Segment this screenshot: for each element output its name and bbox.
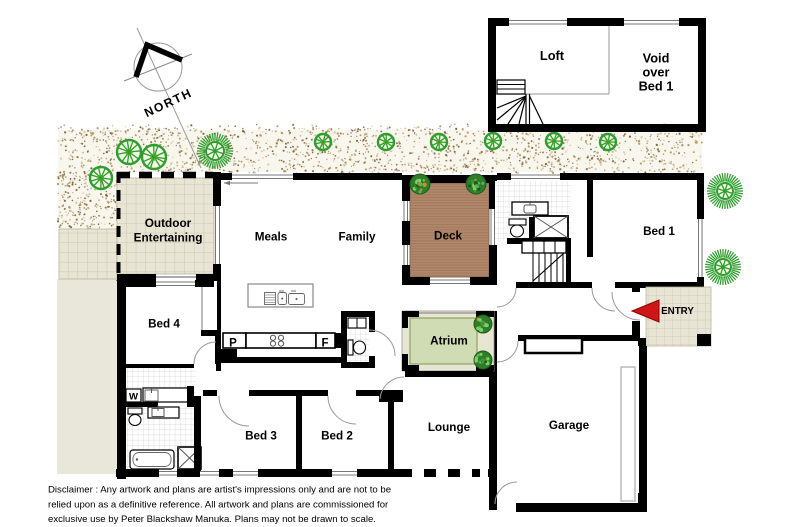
svg-text:Bed 3: Bed 3 bbox=[245, 430, 277, 443]
svg-text:W: W bbox=[129, 392, 138, 403]
svg-text:Family: Family bbox=[338, 231, 376, 244]
svg-text:Lounge: Lounge bbox=[428, 421, 471, 434]
svg-text:ENTRY: ENTRY bbox=[661, 306, 694, 317]
svg-text:Void: Void bbox=[643, 51, 670, 66]
svg-text:Loft: Loft bbox=[540, 48, 565, 63]
svg-text:Atrium: Atrium bbox=[430, 335, 468, 348]
svg-text:over: over bbox=[642, 65, 669, 80]
svg-text:F: F bbox=[321, 338, 328, 350]
svg-text:Bed 1: Bed 1 bbox=[639, 79, 674, 94]
svg-text:Bed 4: Bed 4 bbox=[148, 318, 180, 331]
svg-text:Garage: Garage bbox=[549, 419, 590, 432]
svg-text:P: P bbox=[229, 338, 237, 350]
svg-text:exclusive use by Peter Blacksh: exclusive use by Peter Blackshaw Manuka.… bbox=[48, 514, 376, 525]
svg-text:relied upon as a definitive re: relied upon as a definitive reference. A… bbox=[48, 499, 389, 510]
svg-text:Bed 2: Bed 2 bbox=[321, 430, 353, 443]
svg-text:Deck: Deck bbox=[434, 230, 462, 243]
svg-text:Bed 1: Bed 1 bbox=[643, 225, 675, 238]
svg-text:Entertaining: Entertaining bbox=[134, 231, 203, 245]
svg-text:Meals: Meals bbox=[255, 231, 288, 244]
svg-text:Outdoor: Outdoor bbox=[145, 216, 192, 230]
svg-text:Disclaimer : Any artwork and p: Disclaimer : Any artwork and plans are a… bbox=[48, 485, 391, 496]
